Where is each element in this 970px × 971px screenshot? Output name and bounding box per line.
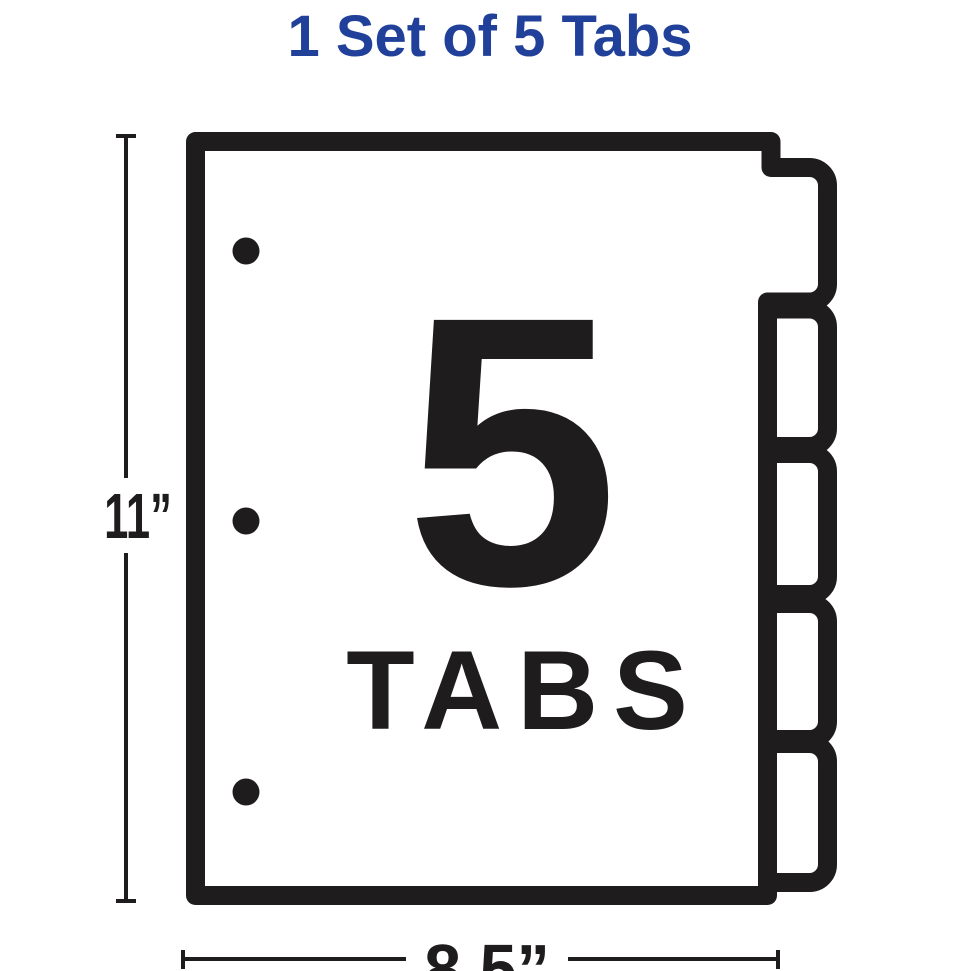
page-title: 1 Set of 5 Tabs — [190, 0, 790, 73]
hole-punch-bottom — [233, 779, 260, 806]
product-diagram: 1 Set of 5 Tabs 5 TABS 11” 8.5” — [0, 0, 970, 971]
hole-punch-top — [233, 238, 260, 265]
width-dimension-label: 8.5” — [392, 934, 582, 971]
height-dimension-label: 11” — [104, 466, 172, 566]
tab-count-number: 5 — [332, 300, 692, 604]
hole-punch-middle — [233, 508, 260, 535]
tabs-word-label: TABS — [317, 634, 717, 746]
